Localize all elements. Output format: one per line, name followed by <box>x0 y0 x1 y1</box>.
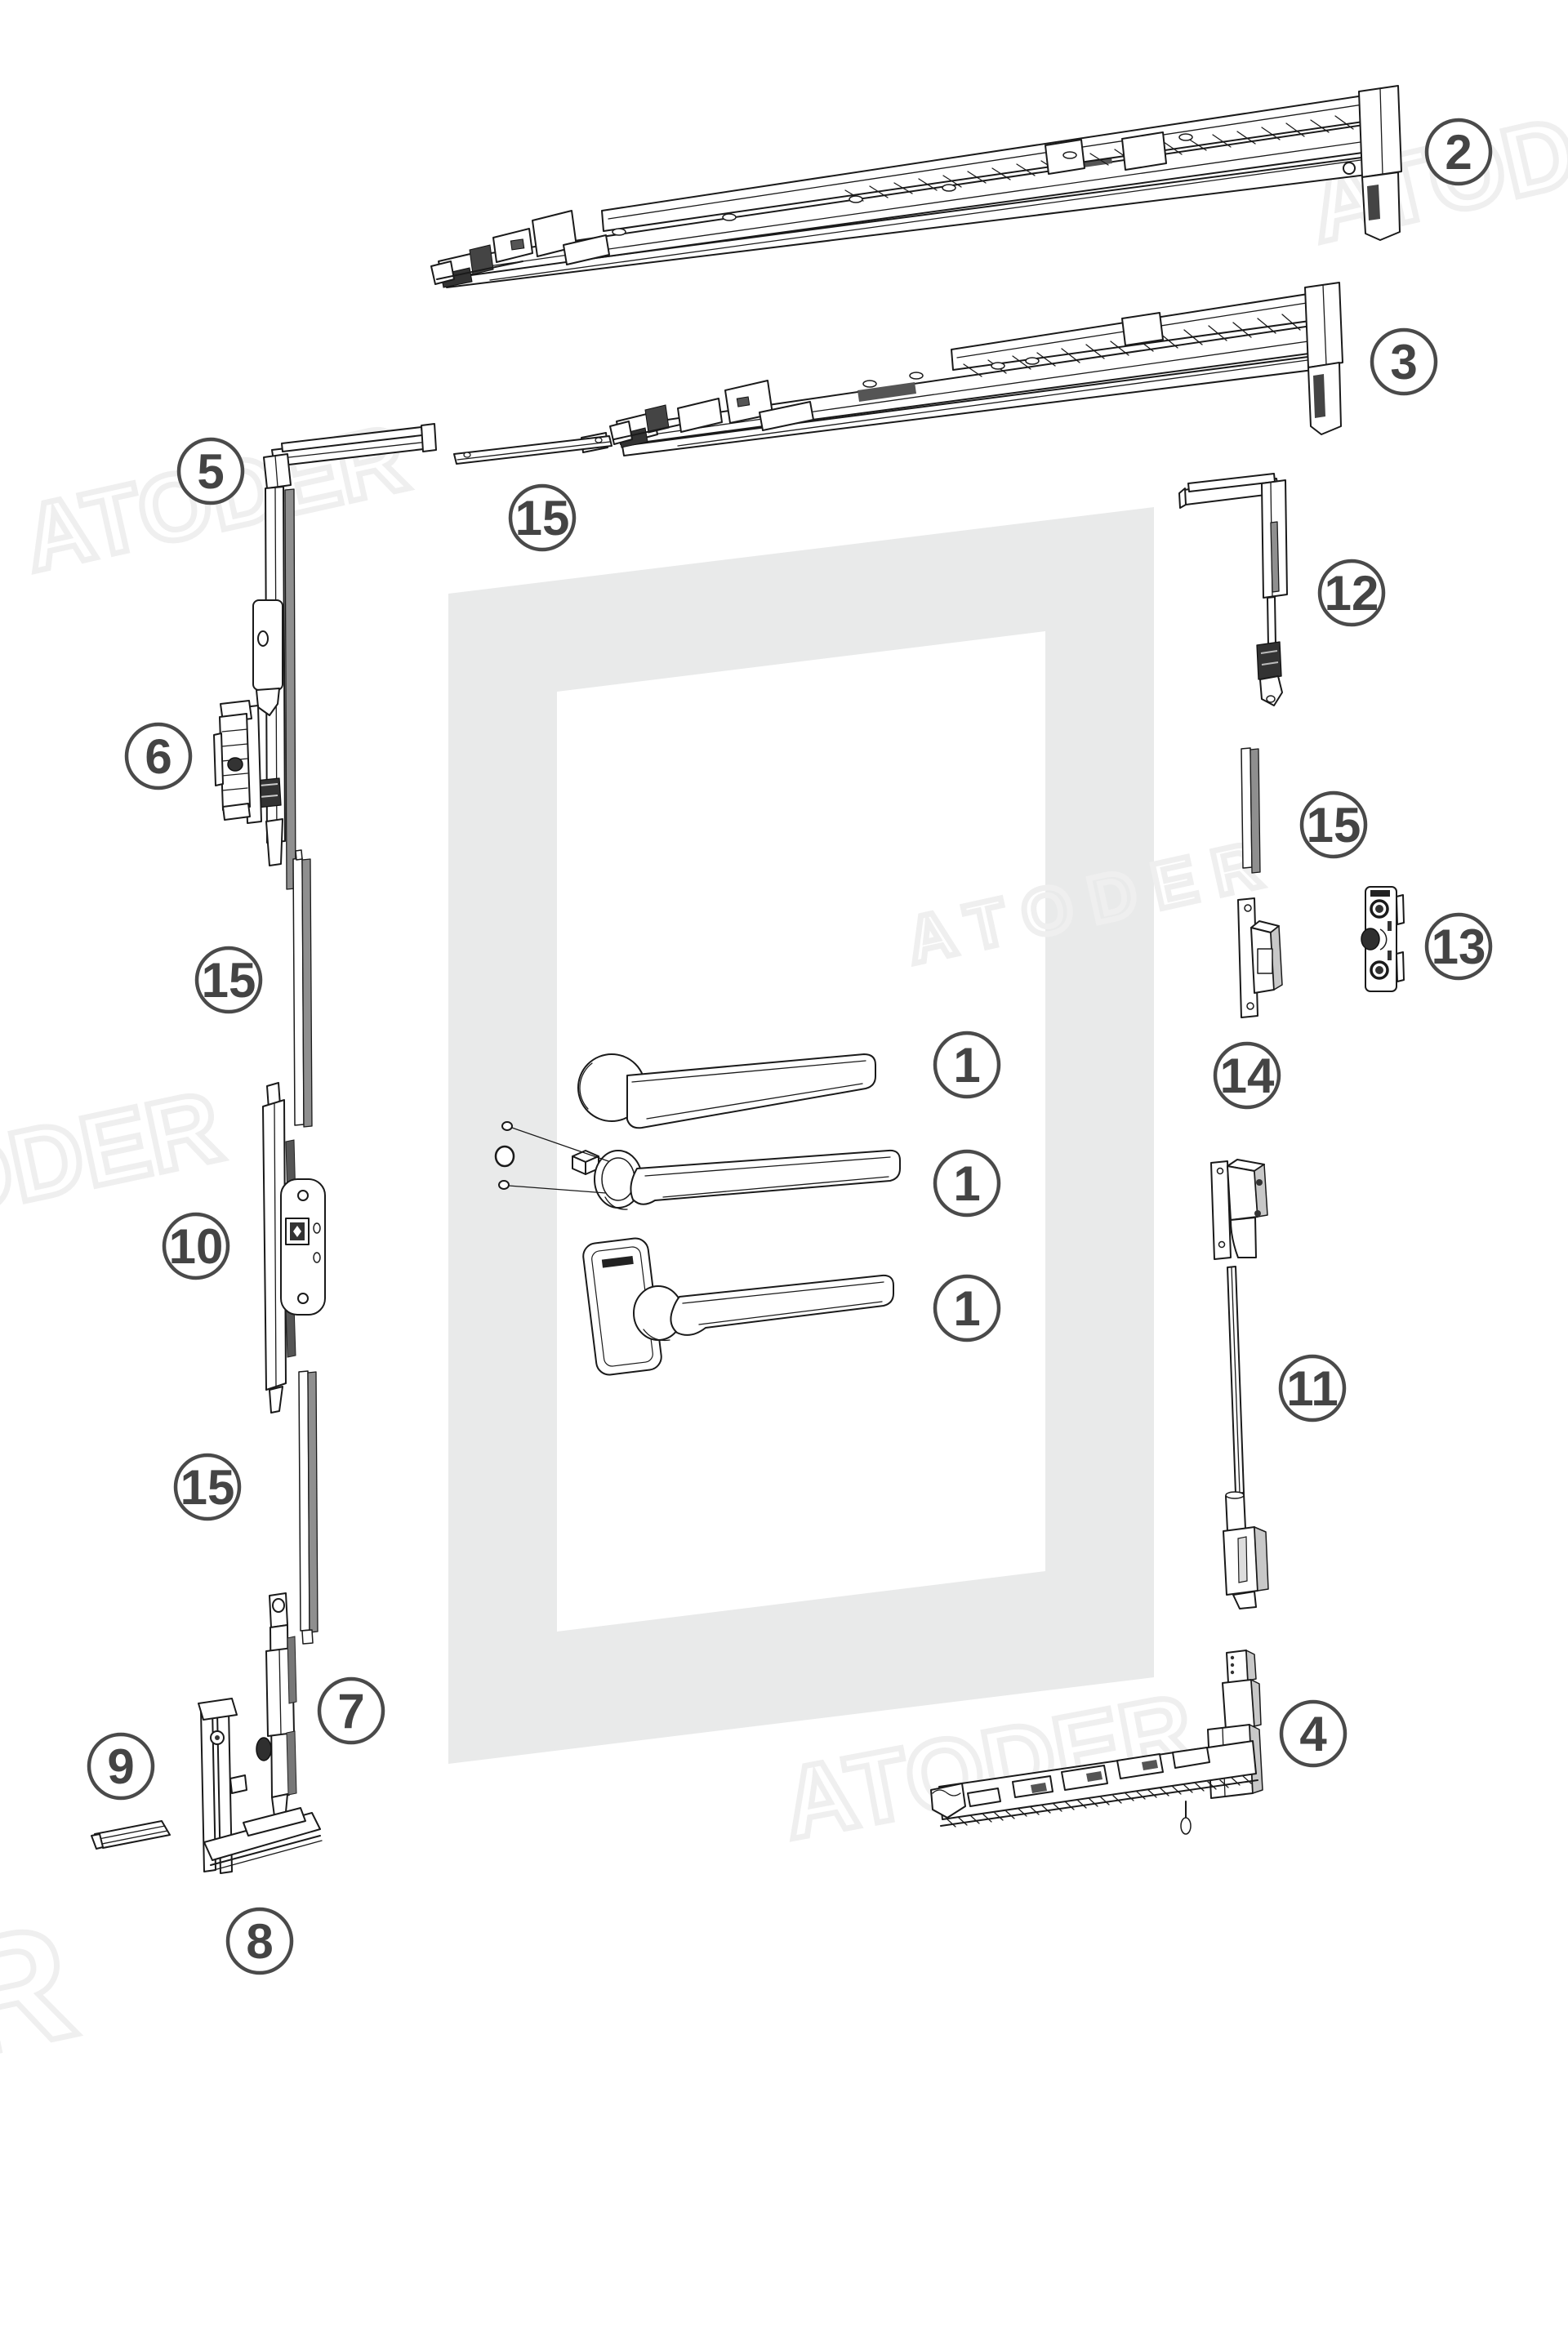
svg-text:15: 15 <box>202 953 256 1008</box>
svg-text:15: 15 <box>1307 798 1361 853</box>
svg-text:7: 7 <box>337 1684 364 1739</box>
svg-text:9: 9 <box>107 1739 134 1794</box>
svg-text:5: 5 <box>197 444 224 499</box>
svg-text:13: 13 <box>1432 919 1486 974</box>
svg-text:14: 14 <box>1220 1049 1275 1103</box>
svg-text:8: 8 <box>246 1914 273 1969</box>
svg-text:4: 4 <box>1299 1707 1327 1761</box>
svg-text:15: 15 <box>180 1460 235 1515</box>
svg-text:6: 6 <box>145 729 171 784</box>
svg-text:1: 1 <box>953 1156 980 1211</box>
svg-text:12: 12 <box>1325 566 1379 621</box>
svg-text:2: 2 <box>1445 125 1472 180</box>
svg-text:11: 11 <box>1286 1361 1338 1416</box>
svg-text:10: 10 <box>169 1219 224 1274</box>
svg-text:1: 1 <box>953 1281 980 1336</box>
svg-text:15: 15 <box>515 491 570 545</box>
svg-text:3: 3 <box>1390 335 1417 390</box>
svg-text:1: 1 <box>953 1038 980 1093</box>
